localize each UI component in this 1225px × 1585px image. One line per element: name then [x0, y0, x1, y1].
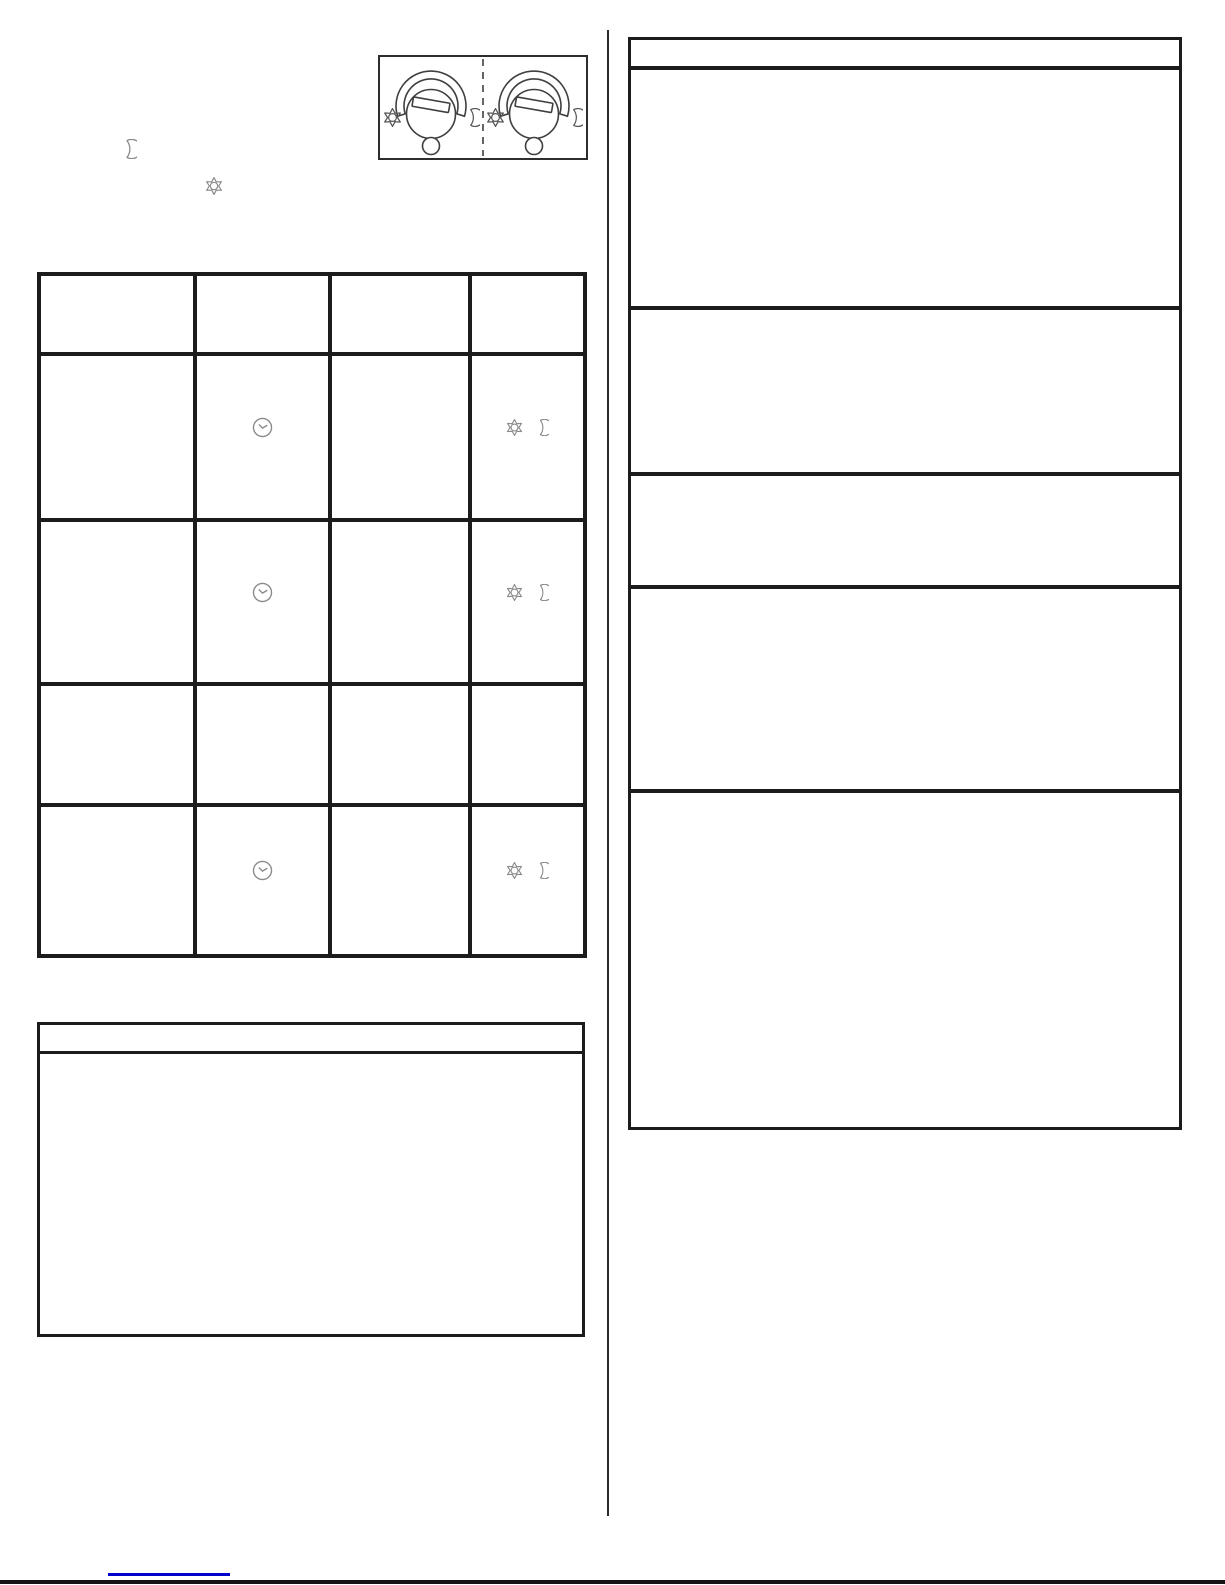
note-box-body	[40, 1054, 582, 1334]
settings-cell	[332, 807, 468, 954]
settings-cell	[472, 522, 583, 682]
footer-rule	[0, 1580, 1225, 1584]
page	[0, 0, 1225, 1585]
settings-cell	[41, 522, 193, 682]
clock-icon	[252, 417, 273, 438]
settings-table	[37, 272, 587, 958]
settings-cell	[472, 686, 583, 803]
settings-cell	[197, 356, 328, 518]
moon-icon	[123, 138, 137, 160]
settings-cell	[332, 686, 468, 803]
info-table-row	[631, 310, 1179, 472]
dial-diagram	[378, 55, 588, 160]
info-table-row	[631, 476, 1179, 585]
info-table-row	[631, 793, 1179, 1127]
settings-cell	[41, 356, 193, 518]
info-table-header	[631, 40, 1179, 66]
settings-cell	[197, 522, 328, 682]
settings-cell	[197, 686, 328, 803]
settings-cell	[472, 356, 583, 518]
sun-icon	[506, 862, 523, 879]
moon-icon	[537, 419, 549, 436]
info-table-row	[631, 589, 1179, 789]
info-table-row	[631, 70, 1179, 306]
note-box-header	[40, 1025, 582, 1051]
settings-cell	[332, 356, 468, 518]
dial-panel-right	[488, 71, 586, 154]
settings-cell	[332, 522, 468, 682]
moon-icon	[537, 862, 549, 879]
clock-icon	[252, 860, 273, 881]
settings-header-cell	[472, 276, 583, 352]
moon-icon	[537, 584, 549, 601]
column-divider	[607, 30, 609, 1516]
info-table	[628, 37, 1182, 1130]
settings-cell	[41, 686, 193, 803]
sun-icon	[205, 177, 223, 195]
dial-panel-left	[385, 71, 484, 154]
dial-diagram-figure	[380, 57, 586, 158]
note-box	[37, 1022, 585, 1337]
footer-link[interactable]	[108, 1573, 230, 1576]
settings-header-cell	[197, 276, 328, 352]
settings-cell	[472, 807, 583, 954]
settings-cell	[41, 807, 193, 954]
settings-cell	[197, 807, 328, 954]
sun-icon	[506, 584, 523, 601]
settings-header-cell	[332, 276, 468, 352]
settings-header-cell	[41, 276, 193, 352]
sun-icon	[506, 419, 523, 436]
clock-icon	[252, 582, 273, 603]
